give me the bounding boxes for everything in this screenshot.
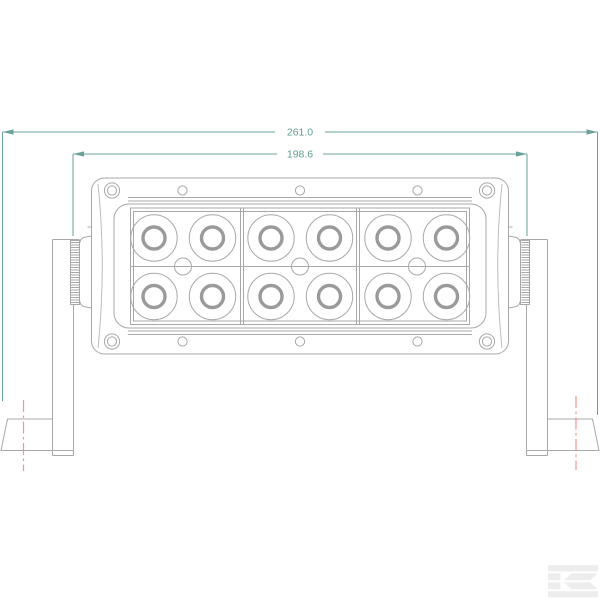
arrowhead-left-icon xyxy=(73,151,84,156)
arrowhead-right-icon xyxy=(516,151,527,156)
mounting-bracket-left xyxy=(1,240,80,472)
arrowhead-right-icon xyxy=(587,129,598,134)
technical-drawing: 261.0 198.6 xyxy=(0,0,600,600)
dimension-label-mounting: 198.6 xyxy=(287,149,313,161)
dimension-label-overall: 261.0 xyxy=(287,127,313,139)
knurled-knob-right xyxy=(509,236,530,308)
light-bar xyxy=(88,178,513,354)
mounting-bracket-right xyxy=(521,240,600,471)
knurled-knob-left xyxy=(71,236,92,308)
kramp-k-logo-icon xyxy=(548,565,598,597)
bracket-foot-left xyxy=(1,419,74,451)
arrowhead-left-icon xyxy=(3,129,14,134)
bracket-foot-right xyxy=(526,419,599,451)
